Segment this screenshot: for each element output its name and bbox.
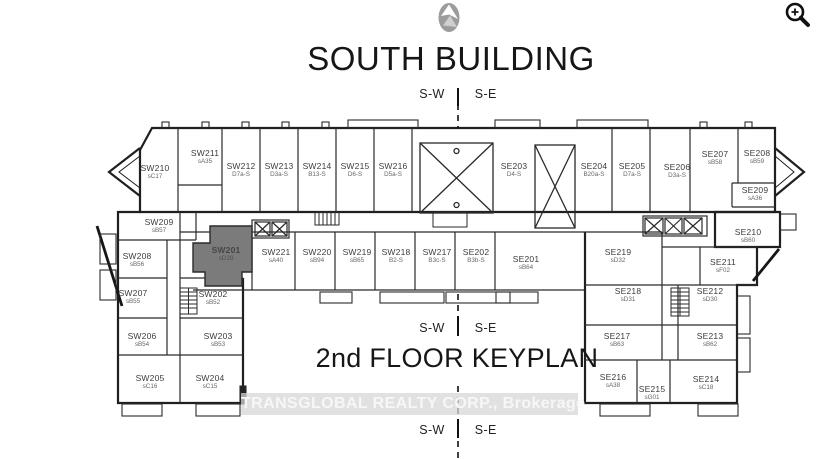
unit-label-SW217: SW217B3c-S <box>423 248 452 264</box>
unit-label-SE215: SE215sG01 <box>639 385 666 401</box>
unit-label-SW216: SW216D5a-S <box>379 162 408 178</box>
stairwells <box>180 212 689 316</box>
unit-label-SW202: SW202sB52 <box>199 290 228 306</box>
unit-label-SW221: SW221sA40 <box>262 248 291 264</box>
keyplan-caption: 2nd FLOOR KEYPLAN <box>316 343 599 374</box>
unit-label-SE210: SE210sB60 <box>735 228 762 244</box>
brand-logo-icon <box>435 2 465 33</box>
unit-label-SE202: SE202B3b-S <box>463 248 490 264</box>
unit-label-SW215: SW215D6-S <box>341 162 370 178</box>
direction-sw-label: S-W <box>419 87 445 101</box>
unit-label-SW214: SW214B13-S <box>303 162 332 178</box>
unit-label-SE207: SE207sB58 <box>702 150 729 166</box>
direction-sw-label: S-W <box>419 423 445 437</box>
unit-label-SW218: SW218B2-S <box>382 248 411 264</box>
unit-label-SE206: SE206D3a-S <box>664 163 691 179</box>
unit-label-SW219: SW219sB65 <box>343 248 372 264</box>
unit-label-SW213: SW213D3a-S <box>265 162 294 178</box>
unit-label-SE205: SE205D7a-S <box>619 162 646 178</box>
unit-label-SW205: SW205sC16 <box>136 374 165 390</box>
unit-label-SE201: SE201sB64 <box>513 255 540 271</box>
unit-label-SE204: SE204B20a-S <box>581 162 608 178</box>
direction-se-label: S-E <box>475 423 497 437</box>
unit-label-SW220: SW220sB94 <box>303 248 332 264</box>
direction-marker-top: S-W S-E <box>419 87 497 101</box>
direction-sw-label: S-W <box>419 321 445 335</box>
light-wells <box>420 143 575 228</box>
unit-label-SE214: SE214sC18 <box>693 375 720 391</box>
unit-label-SE209: SE209sA36 <box>742 186 769 202</box>
unit-label-SE212: SE212sD30 <box>697 287 724 303</box>
unit-label-SW210: SW210sC17 <box>141 164 170 180</box>
unit-label-SW211: SW211sA35 <box>191 149 219 165</box>
unit-label-SE213: SE213sB62 <box>697 332 724 348</box>
unit-label-SE219: SE219sD32 <box>605 248 632 264</box>
bay-window-lines <box>119 156 794 188</box>
unit-label-SW212: SW212D7a-S <box>227 162 256 178</box>
unit-label-SW201: SW201sD39 <box>212 246 241 262</box>
unit-label-SW207: SW207sB55 <box>119 289 148 305</box>
unit-label-SW209: SW209sB57 <box>145 218 174 234</box>
direction-se-label: S-E <box>475 321 497 335</box>
direction-marker-middle: S-W S-E <box>419 321 497 335</box>
unit-label-SE216: SE216sA38 <box>600 373 627 389</box>
unit-label-SE208: SE208sB59 <box>744 149 771 165</box>
unit-label-SW206: SW206sB54 <box>128 332 157 348</box>
unit-label-SE217: SE217sB63 <box>604 332 631 348</box>
unit-label-SE218: SE218sD31 <box>615 287 642 303</box>
unit-label-SE211: SE211sF02 <box>710 258 736 274</box>
elevator-cores <box>252 216 707 238</box>
zoom-in-icon[interactable] <box>784 1 811 28</box>
unit-label-SW204: SW204sC15 <box>196 374 225 390</box>
page-title: SOUTH BUILDING <box>307 40 595 78</box>
direction-marker-bottom: S-W S-E <box>419 423 497 437</box>
direction-se-label: S-E <box>475 87 497 101</box>
unit-label-SE203: SE203D4-S <box>501 162 528 178</box>
floorplan-page: SOUTH BUILDING 2nd FLOOR KEYPLAN S-W S-E… <box>0 0 822 459</box>
unit-label-SW208: SW208sB56 <box>123 252 152 268</box>
unit-label-SW203: SW203sB53 <box>204 332 233 348</box>
watermark: TRANSGLOBAL REALTY CORP., Brokerage <box>241 393 578 415</box>
